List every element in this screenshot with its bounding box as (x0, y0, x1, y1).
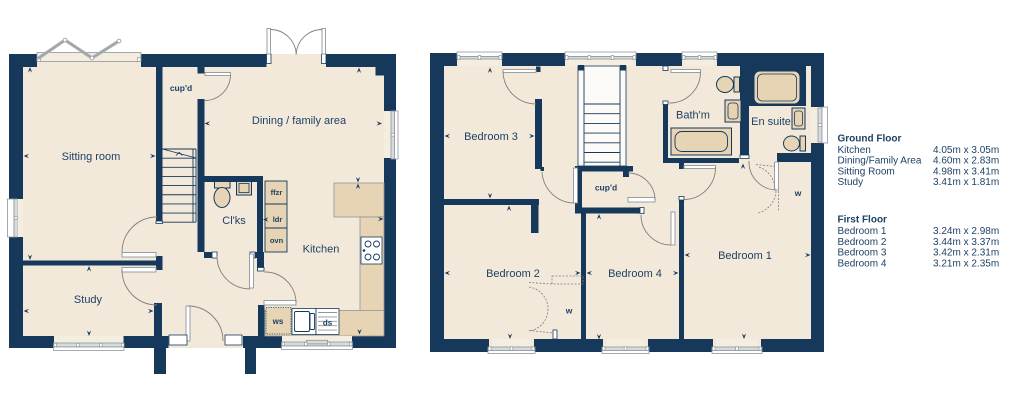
svg-text:ffzr: ffzr (271, 188, 283, 197)
svg-text:ws: ws (272, 317, 284, 326)
svg-text:3.41m x 1.81m: 3.41m x 1.81m (933, 177, 999, 188)
svg-text:cup'd: cup'd (595, 183, 617, 193)
svg-text:3.42m x 2.31m: 3.42m x 2.31m (933, 248, 999, 259)
svg-text:3.44m x 3.37m: 3.44m x 3.37m (933, 237, 999, 248)
svg-text:Study: Study (838, 177, 864, 188)
svg-text:Cl'ks: Cl'ks (222, 215, 246, 227)
svg-text:ovn: ovn (270, 236, 284, 245)
svg-text:Kitchen: Kitchen (303, 244, 340, 256)
svg-text:4.60m x 2.83m: 4.60m x 2.83m (933, 156, 999, 167)
svg-text:Bedroom 1: Bedroom 1 (718, 250, 772, 262)
svg-text:Sitting Room: Sitting Room (838, 166, 895, 177)
svg-text:Bedroom 3: Bedroom 3 (464, 131, 518, 143)
svg-text:4.05m x 3.05m: 4.05m x 3.05m (933, 145, 999, 156)
svg-text:Dining / family area: Dining / family area (252, 115, 347, 127)
svg-text:Bedroom 2: Bedroom 2 (486, 268, 540, 280)
svg-text:Sitting room: Sitting room (62, 151, 121, 163)
svg-text:Bedroom 3: Bedroom 3 (838, 248, 887, 259)
svg-text:Bedroom 4: Bedroom 4 (838, 259, 887, 270)
svg-text:cup'd: cup'd (170, 83, 192, 93)
svg-text:Dining/Family Area: Dining/Family Area (838, 156, 922, 167)
svg-text:w: w (794, 188, 802, 198)
svg-text:3.24m x 2.98m: 3.24m x 2.98m (933, 226, 999, 237)
svg-text:Study: Study (74, 294, 103, 306)
svg-text:ds: ds (323, 319, 333, 328)
svg-text:Bath'm: Bath'm (676, 110, 710, 122)
svg-text:3.21m x 2.35m: 3.21m x 2.35m (933, 259, 999, 270)
svg-text:Bedroom 4: Bedroom 4 (608, 268, 662, 280)
svg-text:ldr: ldr (273, 215, 283, 224)
svg-text:Bedroom 1: Bedroom 1 (838, 226, 887, 237)
svg-text:En suite: En suite (751, 116, 791, 128)
svg-text:4.98m x 3.41m: 4.98m x 3.41m (933, 166, 999, 177)
svg-text:Kitchen: Kitchen (838, 145, 871, 156)
svg-text:First Floor: First Floor (838, 214, 888, 225)
svg-text:w: w (565, 306, 573, 316)
svg-text:Bedroom 2: Bedroom 2 (838, 237, 887, 248)
svg-text:Ground Floor: Ground Floor (838, 134, 902, 145)
